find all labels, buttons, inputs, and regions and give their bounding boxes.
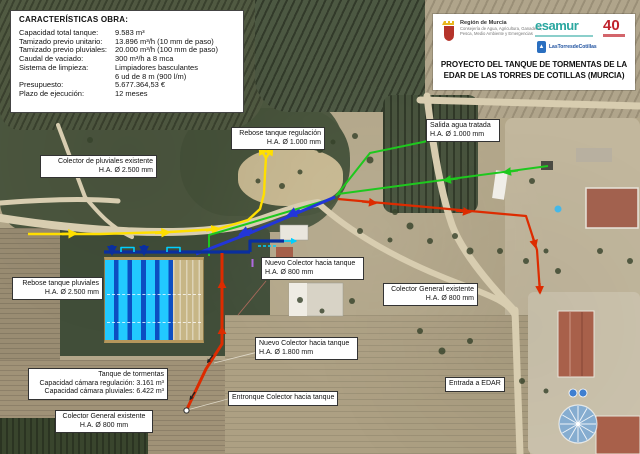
torres-cotillas-badge-icon: ▲ [537, 41, 546, 53]
pool [555, 206, 562, 213]
specs-panel: CARACTERÍSTICAS OBRA: Capacidad total ta… [10, 10, 244, 113]
anniversary-40-sub-bar [603, 34, 625, 37]
spec-row: Plazo de ejecución:12 meses [19, 90, 235, 99]
callout-colector-pluviales: Colector de pluviales existente H.A. Ø 2… [40, 155, 157, 178]
tank-lane-marking [107, 294, 201, 295]
tank-pluvial-chamber [105, 260, 173, 340]
entronque-point [184, 408, 189, 413]
callout-entrada-edar: Entrada a EDAR [445, 377, 505, 392]
title-block: Región de Murcia Consejería de Agua, Agr… [433, 14, 635, 90]
callout-entronque: Entronque Colector hacia tanque [228, 391, 338, 406]
callout-salida-agua: Salida agua tratada H.A. Ø 1.000 mm [426, 119, 500, 142]
esamur-tagline-bar [535, 35, 593, 37]
tank-lane-marking [107, 322, 201, 323]
building-house-northeast [586, 188, 638, 228]
callout-rebose-regulacion: Rebose tanque regulación H.A. Ø 1.000 mm [231, 127, 325, 150]
digester-dome [579, 389, 587, 397]
callout-colector-general-sur: Colector General existente H.A. Ø 800 mm [55, 410, 153, 433]
callout-nuevo-colector-800: Nuevo Colector hacia tanque H.A. Ø 800 m… [261, 257, 364, 280]
edar-second-building [596, 416, 640, 454]
tank-regulation-chamber [173, 260, 203, 340]
callout-nuevo-colector-1800: Nuevo Colector hacia tanque H.A. Ø 1.800… [255, 337, 358, 360]
esamur-logo: esamur [535, 17, 593, 37]
digester-dome [569, 389, 577, 397]
building-grey-northeast [576, 148, 612, 162]
callout-tanque-tormentas: Tanque de tormentas Capacidad cámara reg… [28, 368, 168, 400]
callout-rebose-pluviales: Rebose tanque pluviales H.A. Ø 2.500 mm [12, 277, 103, 300]
edar-main-building [558, 311, 594, 377]
project-title: PROYECTO DEL TANQUE DE TORMENTAS DE LA E… [433, 60, 635, 81]
building-long-white [492, 170, 508, 199]
building-north [280, 225, 308, 240]
region-murcia-logo: Región de Murcia Consejería de Agua, Agr… [442, 20, 542, 42]
anniversary-40-logo: 40 [603, 18, 625, 37]
clarifier-tank [559, 405, 597, 443]
murcia-shield-icon [442, 20, 456, 42]
torres-cotillas-logo: ▲ LasTorresdeCotillas [537, 41, 597, 53]
callout-colector-general-este: Colector General existente H.A. Ø 800 mm [383, 283, 478, 306]
project-map: CARACTERÍSTICAS OBRA: Capacidad total ta… [0, 0, 640, 454]
storm-tank-drawing [104, 257, 204, 343]
specs-title: CARACTERÍSTICAS OBRA: [19, 15, 235, 24]
